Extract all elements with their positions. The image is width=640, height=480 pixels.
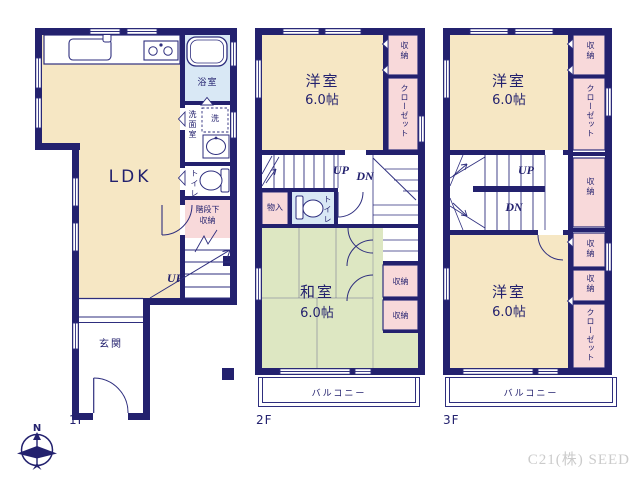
- room-label-tatami: 和室: [293, 284, 341, 301]
- room-size-tatami: 6.0帖: [297, 307, 337, 322]
- floor-1f-plan: LDK 浴室 洗面室 洗 トイレ 階段下 収納 UP 玄関: [35, 28, 237, 420]
- closet-label-3f-top: クローゼット: [584, 84, 594, 146]
- under-stair-storage-label-line2: 収納: [185, 216, 230, 225]
- under-stair-storage-label-line1: 階段下: [185, 205, 230, 214]
- floor-label-3f: 3F: [443, 414, 460, 428]
- washer-label: 洗: [202, 114, 228, 123]
- storage-label-3f-stair: 収納: [584, 177, 594, 207]
- floor-3f-plan: 洋室 6.0帖 収納 クローゼット UP DN 収納 洋室 6.0帖 収納 収納…: [443, 28, 617, 407]
- company-watermark: C21(株) SEED: [502, 448, 630, 469]
- floor-label-2f: 2F: [256, 414, 273, 428]
- closet-label-2f: クローゼット: [398, 84, 408, 146]
- room-label-toilet-1f: トイレ: [188, 169, 198, 199]
- storage-label-3f-b1: 収納: [584, 239, 594, 267]
- balcony-3f: バルコニー: [445, 377, 617, 407]
- toilet-door-arc: [338, 192, 363, 217]
- stair-up-label-1f: UP: [163, 272, 187, 286]
- room-size-western-2f: 6.0帖: [294, 94, 350, 109]
- room-size-western-3f-bottom: 6.0帖: [481, 306, 537, 321]
- closet-label-3f-bottom: クローゼット: [584, 308, 594, 366]
- pillar-mark: [222, 368, 234, 380]
- toilet-label-2f: トイレ: [321, 195, 331, 225]
- stove-icon: [144, 41, 178, 60]
- stair-down-label-3f: DN: [502, 201, 526, 215]
- floor-plan-canvas: LDK 浴室 洗面室 洗 トイレ 階段下 収納 UP 玄関: [0, 0, 640, 480]
- floor-label-1f: 1F: [69, 414, 86, 428]
- room-label-ldk: LDK: [95, 168, 165, 188]
- room-label-entrance: 玄関: [89, 339, 133, 351]
- storage-label-2f-top: 収納: [398, 41, 408, 71]
- floor-2f-plan: 洋室 6.0帖 収納 クローゼット UP DN 物入 トイレ 和室 6.0帖 収…: [255, 28, 425, 407]
- compass-north-label: N: [30, 423, 44, 434]
- room-label-bath: 浴室: [185, 78, 230, 88]
- balcony-2f-label: バルコニー: [259, 386, 419, 399]
- kitchen-counter-icon: [44, 34, 180, 64]
- room-label-western-3f-bottom: 洋室: [479, 284, 539, 301]
- stair-up-label-3f: UP: [514, 164, 538, 178]
- storage-label-2f-mid: 収納: [389, 277, 412, 286]
- storage-label-3f-b2: 収納: [584, 274, 594, 302]
- washbasin-icon: [203, 135, 229, 158]
- storage-label-2f-low: 収納: [389, 311, 412, 320]
- storage-label-3f-top: 収納: [584, 41, 594, 71]
- stair-down-label-2f: DN: [353, 170, 377, 184]
- balcony-3f-label: バルコニー: [446, 386, 616, 399]
- room-label-western-3f-top: 洋室: [479, 73, 539, 90]
- bathtub-icon: [187, 37, 227, 66]
- room-size-western-3f-top: 6.0帖: [481, 94, 537, 109]
- small-storage-label: 物入: [262, 203, 288, 212]
- toilet-icon: [200, 169, 229, 192]
- balcony-2f: バルコニー: [258, 377, 420, 407]
- room-label-western-2f: 洋室: [292, 73, 353, 90]
- stair-up-label-2f: UP: [329, 164, 353, 178]
- room-label-washroom: 洗面室: [186, 110, 196, 162]
